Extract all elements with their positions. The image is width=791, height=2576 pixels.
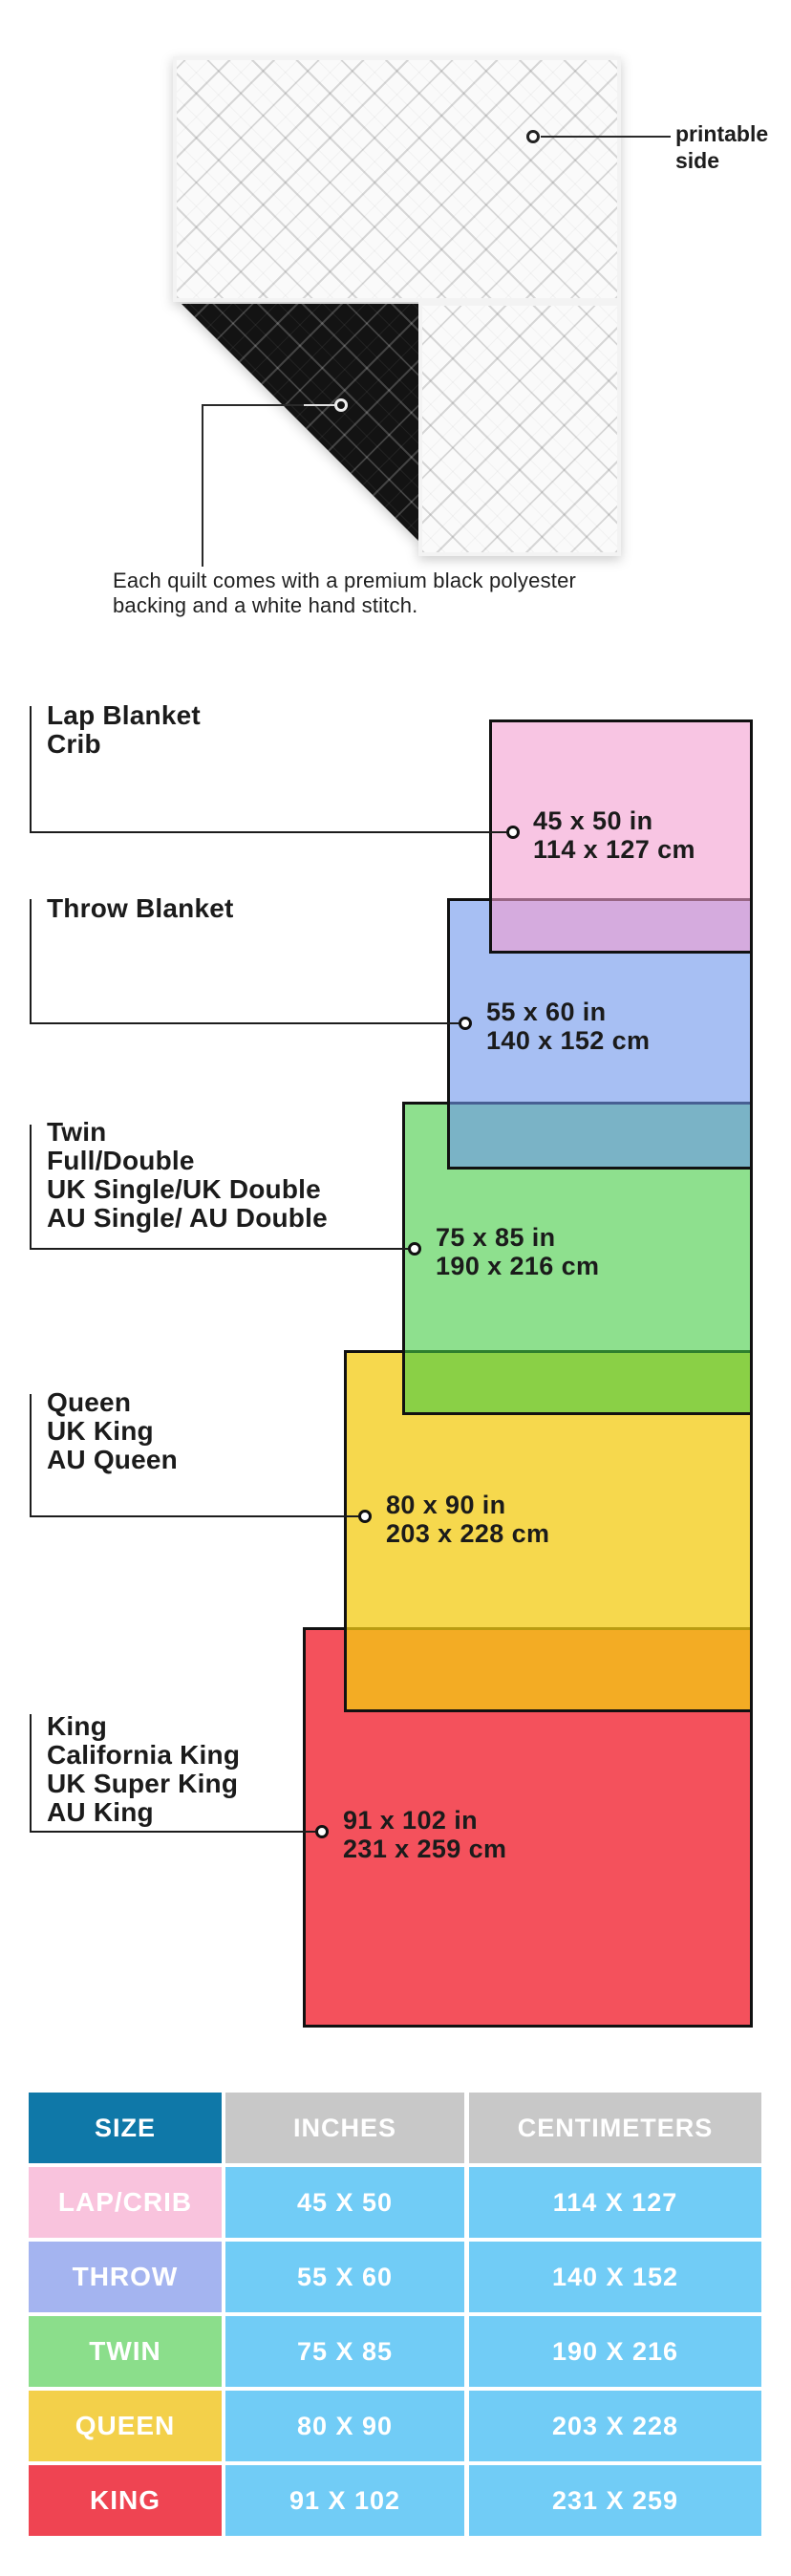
size-table-header-centimeters: CENTIMETERS: [469, 2093, 761, 2163]
table-cell-size: TWIN: [29, 2316, 222, 2387]
table-cell-size: KING: [29, 2465, 222, 2536]
size-dims-lap-crib: 45 x 50 in 114 x 127 cm: [533, 806, 695, 864]
quilt-illustration: [173, 56, 621, 556]
size-label-line: UK King: [47, 1417, 178, 1446]
size-table-header-size: SIZE: [29, 2093, 222, 2163]
printable-side-leader-line: [541, 136, 671, 138]
size-label-throw: Throw Blanket: [47, 894, 234, 923]
leader-throw-horizontal: [30, 1022, 459, 1024]
printable-side-label-line1: printable: [675, 120, 768, 147]
size-dims-queen: 80 x 90 in 203 x 228 cm: [386, 1491, 549, 1548]
leader-twin-vertical: [30, 1125, 32, 1250]
size-label-line: UK Super King: [47, 1770, 240, 1798]
backing-leader-line-on-fabric: [304, 404, 334, 406]
printable-side-label-line2: side: [675, 147, 768, 174]
table-cell-size: LAP/CRIB: [29, 2167, 222, 2238]
size-label-line: AU Single/ AU Double: [47, 1204, 328, 1233]
size-dims-cm: 203 x 228 cm: [386, 1519, 549, 1548]
size-label-line: Lap Blanket: [47, 701, 201, 730]
size-dims-inches: 91 x 102 in: [343, 1806, 506, 1835]
size-label-line: AU King: [47, 1798, 240, 1827]
size-dims-throw: 55 x 60 in 140 x 152 cm: [486, 998, 650, 1055]
table-row-queen: QUEEN 80 X 90 203 X 228: [29, 2391, 761, 2461]
table-cell-size: QUEEN: [29, 2391, 222, 2461]
size-label-line: King: [47, 1712, 240, 1741]
size-label-line: California King: [47, 1741, 240, 1770]
leader-king-horizontal: [30, 1831, 315, 1833]
size-dims-king: 91 x 102 in 231 x 259 cm: [343, 1806, 506, 1863]
printable-side-label: printable side: [675, 120, 768, 174]
leader-queen-vertical: [30, 1394, 32, 1517]
quilt-caption-line1: Each quilt comes with a premium black po…: [113, 569, 576, 593]
table-cell-cm: 114 X 127: [469, 2167, 761, 2238]
quilt-front-top: [173, 56, 621, 302]
size-label-queen: Queen UK King AU Queen: [47, 1388, 178, 1474]
size-dims-cm: 231 x 259 cm: [343, 1835, 506, 1863]
table-cell-cm: 231 X 259: [469, 2465, 761, 2536]
table-row-lap-crib: LAP/CRIB 45 X 50 114 X 127: [29, 2167, 761, 2238]
quilt-front-corner: [418, 302, 621, 556]
leader-king-vertical: [30, 1714, 32, 1833]
table-cell-inches: 91 X 102: [225, 2465, 464, 2536]
table-cell-cm: 140 X 152: [469, 2242, 761, 2312]
size-dims-inches: 55 x 60 in: [486, 998, 650, 1026]
size-dims-cm: 190 x 216 cm: [436, 1252, 599, 1280]
backing-leader-line-vertical: [202, 404, 203, 567]
leader-lap-vertical: [30, 706, 32, 832]
size-label-line: Throw Blanket: [47, 894, 234, 923]
backing-leader-line: [203, 404, 304, 406]
size-dims-cm: 140 x 152 cm: [486, 1026, 650, 1055]
size-table-header-row: SIZE INCHES CENTIMETERS: [29, 2093, 761, 2163]
size-label-line: Crib: [47, 730, 201, 759]
table-cell-inches: 80 X 90: [225, 2391, 464, 2461]
table-row-throw: THROW 55 X 60 140 X 152: [29, 2242, 761, 2312]
leader-queen-marker: [358, 1510, 372, 1523]
leader-lap-horizontal: [30, 831, 506, 833]
size-label-line: AU Queen: [47, 1446, 178, 1474]
size-label-line: Queen: [47, 1388, 178, 1417]
leader-twin-horizontal: [30, 1248, 408, 1250]
size-table: SIZE INCHES CENTIMETERS LAP/CRIB 45 X 50…: [29, 2093, 761, 2536]
table-row-king: KING 91 X 102 231 X 259: [29, 2465, 761, 2536]
quilt-caption: Each quilt comes with a premium black po…: [113, 569, 576, 618]
table-cell-size: THROW: [29, 2242, 222, 2312]
quilt-caption-line2: backing and a white hand stitch.: [113, 593, 576, 618]
size-label-king: King California King UK Super King AU Ki…: [47, 1712, 240, 1827]
size-dims-inches: 80 x 90 in: [386, 1491, 549, 1519]
table-row-twin: TWIN 75 X 85 190 X 216: [29, 2316, 761, 2387]
size-dims-inches: 75 x 85 in: [436, 1223, 599, 1252]
leader-lap-marker: [506, 826, 520, 839]
size-label-line: Full/Double: [47, 1147, 328, 1175]
table-cell-inches: 55 X 60: [225, 2242, 464, 2312]
size-table-header-inches: INCHES: [225, 2093, 464, 2163]
size-label-lap-crib: Lap Blanket Crib: [47, 701, 201, 759]
size-dims-cm: 114 x 127 cm: [533, 835, 695, 864]
size-label-line: Twin: [47, 1118, 328, 1147]
leader-king-marker: [315, 1825, 329, 1838]
printable-side-marker: [526, 130, 540, 143]
size-dims-twin: 75 x 85 in 190 x 216 cm: [436, 1223, 599, 1280]
table-cell-inches: 75 X 85: [225, 2316, 464, 2387]
leader-throw-marker: [459, 1017, 472, 1030]
size-dims-inches: 45 x 50 in: [533, 806, 695, 835]
leader-queen-horizontal: [30, 1515, 358, 1517]
table-cell-cm: 203 X 228: [469, 2391, 761, 2461]
table-cell-cm: 190 X 216: [469, 2316, 761, 2387]
backing-marker: [334, 398, 348, 412]
size-label-twin: Twin Full/Double UK Single/UK Double AU …: [47, 1118, 328, 1233]
table-cell-inches: 45 X 50: [225, 2167, 464, 2238]
size-guide-page: { "quilt": { "printable_label_lines": ["…: [0, 0, 791, 2576]
quilt-black-backing-fold: [182, 304, 418, 541]
leader-throw-vertical: [30, 899, 32, 1024]
leader-twin-marker: [408, 1242, 421, 1256]
size-label-line: UK Single/UK Double: [47, 1175, 328, 1204]
